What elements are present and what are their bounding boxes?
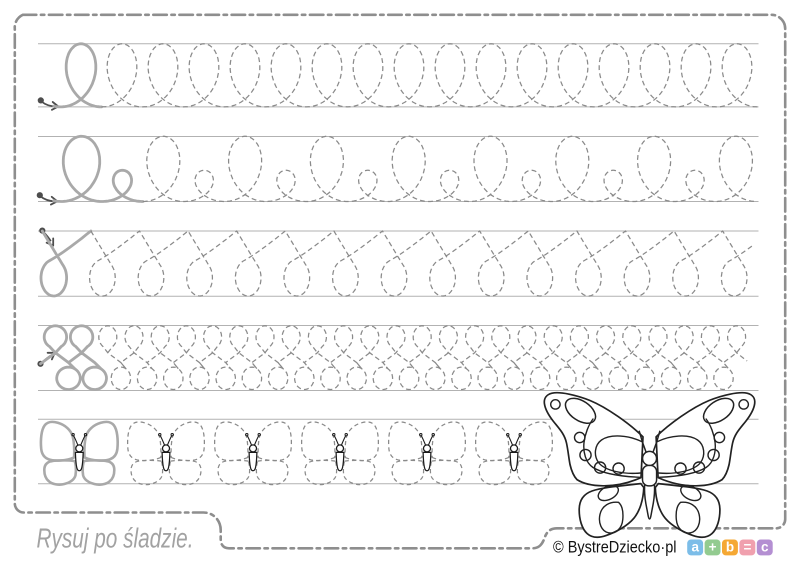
svg-text:+: + bbox=[709, 540, 717, 555]
svg-text:© BystreDziecko·pl: © BystreDziecko·pl bbox=[553, 539, 677, 557]
svg-text:b: b bbox=[726, 540, 734, 555]
svg-text:Rysuj po śladzie.: Rysuj po śladzie. bbox=[37, 523, 194, 554]
svg-text:a: a bbox=[691, 540, 699, 555]
svg-text:=: = bbox=[743, 540, 751, 555]
svg-text:c: c bbox=[761, 540, 769, 555]
